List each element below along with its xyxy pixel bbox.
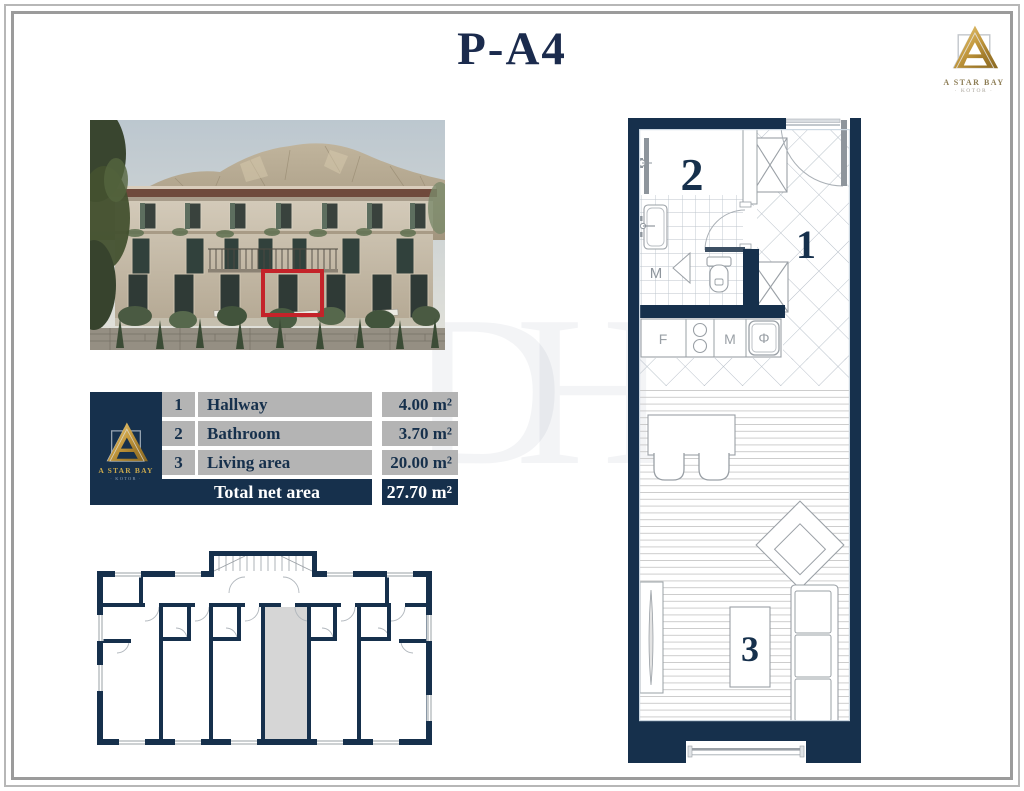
row-value: 20.00 m² <box>382 450 458 475</box>
highlighted-unit <box>265 607 307 743</box>
table-logo-mark <box>99 416 153 466</box>
mini-plan-walls <box>97 551 432 745</box>
row-label: Hallway <box>198 392 372 417</box>
area-table: A STAR BAY · KOTOR · 1 Hallway 4.00 m² 2… <box>90 392 459 505</box>
living-window <box>686 741 806 763</box>
page-title: P-A4 <box>0 22 1024 76</box>
brand-logo: A STAR BAY · KOTOR · <box>936 20 1012 94</box>
sofa <box>791 585 838 725</box>
sink-label: Φ <box>758 330 769 346</box>
fridge-label: F <box>659 331 668 347</box>
table-brand-box: A STAR BAY · KOTOR · <box>90 392 162 505</box>
table-brand-city: · KOTOR · <box>110 476 141 481</box>
roof <box>111 189 437 197</box>
wardrobe <box>640 582 663 693</box>
row-value: 3.70 m² <box>382 421 458 446</box>
row-value: 4.00 m² <box>382 392 458 417</box>
shower <box>639 138 652 194</box>
staircase <box>214 556 312 571</box>
washer-label: M <box>650 265 663 282</box>
dining-table <box>648 415 735 455</box>
row-label: Bathroom <box>198 421 372 446</box>
table-brand-name: A STAR BAY <box>98 466 153 475</box>
total-label: Total net area <box>162 479 372 505</box>
glass-partition <box>743 129 757 204</box>
row-num: 3 <box>162 450 195 475</box>
room-label-hallway: 1 <box>796 222 816 267</box>
row-num: 2 <box>162 421 195 446</box>
kitchen-washer-label: M <box>724 331 736 347</box>
brand-logo-mark <box>942 20 1006 72</box>
stone-wall <box>90 328 445 350</box>
plan-sheet: DH P-A4 A STAR BAY · KOTOR · <box>0 0 1024 791</box>
toilet <box>707 257 731 292</box>
bathroom-door-leaf <box>705 247 745 252</box>
closet-top <box>753 138 787 192</box>
total-value: 27.70 m² <box>382 479 458 505</box>
brand-name: A STAR BAY <box>936 78 1012 87</box>
room-label-bathroom: 2 <box>681 149 704 200</box>
row-num: 1 <box>162 392 195 417</box>
brand-city: · KOTOR · <box>936 88 1012 94</box>
room-label-living: 3 <box>741 629 759 669</box>
row-label: Living area <box>198 450 372 475</box>
building-floor-plan <box>95 545 435 757</box>
apartment-floor-plan: 2 1 3 M F M Φ <box>628 118 861 763</box>
building-photo <box>90 120 445 350</box>
